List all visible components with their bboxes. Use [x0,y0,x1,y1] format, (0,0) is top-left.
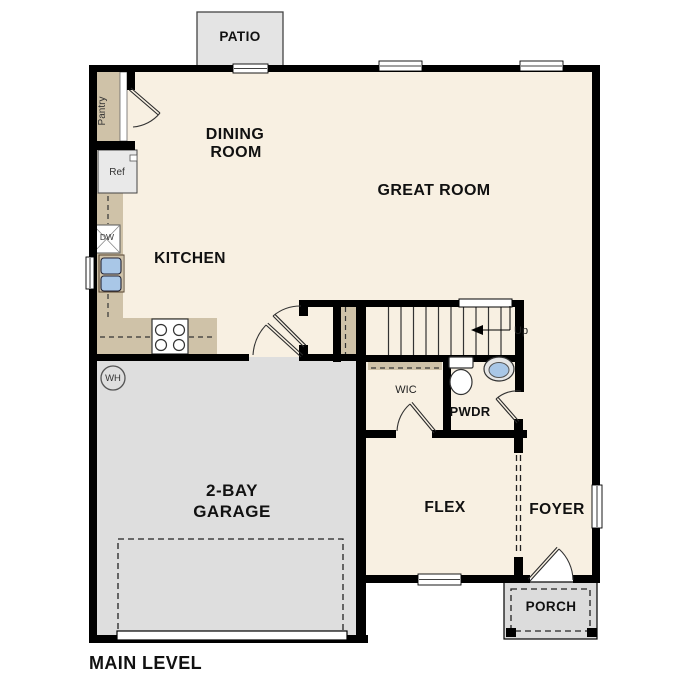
stove-burner [156,340,167,351]
room-label-dining1: DINING [206,126,264,143]
wall-cased-opening-stub [514,557,523,583]
wall-garage-right [356,302,366,643]
kitchen-counter-left [97,193,123,320]
page-title: MAIN LEVEL [89,653,202,673]
porch-post-left [506,628,516,637]
label-dishwasher: DW [100,232,114,242]
porch-post-right [587,628,597,637]
kitchen-sink-basin-bottom [101,276,121,291]
toilet-bowl [450,370,472,395]
room-label-pwdr: PWDR [450,404,491,419]
label-stairs-up: Up [514,325,528,337]
label-refrigerator: Ref [109,167,125,178]
pantry-shelf-edge [120,72,127,141]
stove-burner [156,325,167,336]
label-water-heater: WH [105,373,121,384]
wall-pantry-stub-top [127,72,135,90]
wall-pantry-stub-bottom [97,141,135,150]
room-label-porch: PORCH [526,599,577,614]
floor-plan: PATIO DINING ROOM GREAT ROOM KITCHEN Pan… [0,0,687,687]
room-label-garage2: GARAGE [193,502,271,521]
room-label-flex: FLEX [424,499,465,516]
stair-side-chase [341,305,356,357]
garage-door [117,631,347,640]
refrigerator-handle [130,155,137,161]
toilet-tank [449,357,473,368]
wall-greatroom-south [299,300,459,307]
room-label-wic: WIC [395,384,416,396]
stair-landing-band [459,299,512,307]
wall-stair-right [515,300,524,392]
room-label-garage1: 2-BAY [206,481,258,500]
wall-wic-pwdr-divider [443,357,451,438]
wall-garage-top-left [89,354,249,361]
wall-flex-top-b [432,430,527,438]
room-label-foyer: FOYER [529,501,584,518]
room-label-great-room: GREAT ROOM [377,182,490,199]
wall-stair-left [333,302,341,362]
room-label-dining2: ROOM [210,144,261,161]
wall-bottom-right-of-door [573,575,600,583]
stove-burner [174,325,185,336]
room-label-kitchen: KITCHEN [154,250,226,267]
kitchen-sink-basin-top [101,258,121,274]
wall-flex-top-a [358,430,396,438]
wall-garage-top-right [306,354,358,361]
floor-plan-drawing: PATIO DINING ROOM GREAT ROOM KITCHEN Pan… [0,0,687,687]
room-label-pantry: Pantry [97,97,108,126]
pwdr-sink-basin [489,363,509,378]
room-label-patio: PATIO [219,29,260,44]
wall-pwdr-stub [514,419,523,453]
stove-burner [174,340,185,351]
